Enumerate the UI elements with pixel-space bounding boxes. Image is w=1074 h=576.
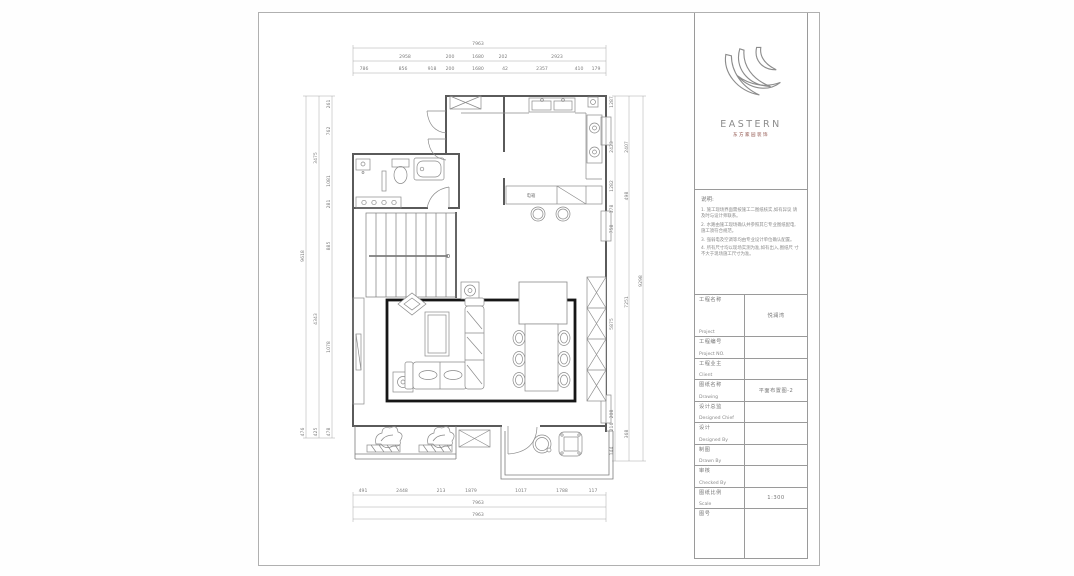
field-value: 1:300 [745, 488, 807, 509]
title-block-table: 工程名称Project悦澜湾工程编号Project NO.工程业主Client图… [695, 294, 807, 558]
svg-text:179: 179 [592, 66, 601, 72]
field-label: 图纸名称Drawing [695, 380, 745, 401]
svg-text:5875: 5875 [609, 318, 615, 330]
note-line: 3. 强弱电及空调等均由专业设计单位确认配置。 [701, 238, 801, 244]
svg-text:786: 786 [360, 66, 369, 72]
note-line: 4. 所有尺寸均以现场实测为准,如有出入,图纸尺 寸不大于现场施工尺寸为准。 [701, 246, 801, 259]
svg-text:1879: 1879 [465, 488, 477, 494]
field-label: 工程编号Project NO. [695, 337, 745, 358]
svg-text:410: 410 [575, 66, 584, 72]
svg-text:885: 885 [326, 242, 332, 251]
stairs [366, 213, 456, 297]
kitchen [461, 98, 602, 221]
balcony-plants [367, 427, 490, 452]
svg-text:2423: 2423 [609, 141, 615, 153]
field-label: 设计Designed By [695, 423, 745, 444]
room-labels: 电箱 [527, 192, 536, 199]
title-block-row: 设计总监Designed Chief [695, 402, 807, 424]
notes-title: 说明: [701, 195, 801, 203]
field-label: 工程业主Client [695, 359, 745, 380]
field-label: 图纸比例Scale [695, 488, 745, 509]
svg-text:2958: 2958 [399, 54, 411, 60]
svg-text:2407: 2407 [624, 141, 630, 153]
field-value [745, 337, 807, 358]
svg-text:42: 42 [502, 66, 508, 72]
drawing-page: 7963295820016802022923786856918200168042… [0, 0, 1074, 576]
field-value [745, 359, 807, 380]
field-value [745, 423, 807, 444]
title-block-row: 工程业主Client [695, 359, 807, 381]
svg-text:1788: 1788 [556, 488, 568, 494]
svg-text:476: 476 [300, 428, 306, 437]
note-line: 1. 施工现场界面需按施工二图纸核实,如有异议 请及时与设计师联系。 [701, 208, 801, 221]
logo-area: EASTERN 东方家园装饰 [695, 13, 807, 189]
svg-text:208: 208 [609, 410, 615, 419]
tv-cabinet [353, 298, 364, 404]
svg-text:202: 202 [499, 54, 508, 60]
field-label: 工程名称Project [695, 295, 745, 336]
balcony-furniture [533, 432, 582, 456]
field-label: 制图Drawn By [695, 445, 745, 466]
svg-text:1282: 1282 [609, 180, 615, 192]
svg-text:7251: 7251 [624, 296, 630, 308]
svg-text:117: 117 [589, 488, 598, 494]
svg-text:200: 200 [446, 66, 455, 72]
svg-text:216: 216 [609, 423, 615, 432]
field-value [745, 466, 807, 487]
field-label: 审核Checked By [695, 466, 745, 487]
svg-text:213: 213 [437, 488, 446, 494]
svg-text:3475: 3475 [313, 152, 319, 164]
title-block-row: 设计Designed By [695, 423, 807, 445]
svg-text:918: 918 [428, 66, 437, 72]
svg-text:425: 425 [313, 428, 319, 437]
field-value [745, 402, 807, 423]
title-block: EASTERN 东方家园装饰 说明: 1. 施工现场界面需按施工二图纸核实,如有… [694, 13, 808, 559]
field-value: 悦澜湾 [745, 295, 807, 336]
flue-box [450, 96, 598, 109]
svg-text:856: 856 [399, 66, 408, 72]
svg-text:1081: 1081 [326, 175, 332, 187]
svg-text:368: 368 [624, 430, 630, 439]
notes-area: 说明: 1. 施工现场界面需按施工二图纸核实,如有异议 请及时与设计师联系。2.… [695, 189, 807, 294]
svg-text:2357: 2357 [536, 66, 548, 72]
title-block-row: 审核Checked By [695, 466, 807, 488]
title-block-row: 工程名称Project悦澜湾 [695, 295, 807, 337]
field-value [745, 509, 807, 558]
svg-text:9618: 9618 [300, 250, 306, 262]
svg-text:1017: 1017 [515, 488, 527, 494]
title-block-row: 图纸比例Scale1:300 [695, 488, 807, 510]
svg-text:1680: 1680 [472, 66, 484, 72]
svg-text:7963: 7963 [472, 41, 484, 47]
title-block-row: 图号 [695, 509, 807, 558]
svg-text:电箱: 电箱 [527, 192, 536, 199]
svg-text:1680: 1680 [472, 54, 484, 60]
svg-text:144: 144 [609, 447, 615, 456]
title-block-row: 制图Drawn By [695, 445, 807, 467]
field-label: 设计总监Designed Chief [695, 402, 745, 423]
svg-text:178: 178 [609, 205, 615, 214]
field-label: 图号 [695, 509, 745, 558]
svg-text:7963: 7963 [472, 500, 484, 506]
svg-text:200: 200 [446, 54, 455, 60]
title-block-row: 图纸名称Drawing平面布置图-2 [695, 380, 807, 402]
svg-text:2923: 2923 [551, 54, 563, 60]
svg-text:498: 498 [624, 192, 630, 201]
bathroom-fixtures [356, 158, 444, 208]
eastern-logo-icon [716, 35, 786, 113]
note-line: 2. 水路由施工现场确认并参照其它专业图纸配电, 施工须符合规范。 [701, 223, 801, 236]
drawing-sheet: 7963295820016802022923786856918200168042… [258, 12, 820, 566]
svg-text:1287: 1287 [609, 96, 615, 108]
svg-text:261: 261 [326, 100, 332, 109]
coffee-table [425, 312, 449, 356]
title-block-row: 工程编号Project NO. [695, 337, 807, 359]
svg-text:7963: 7963 [472, 512, 484, 518]
island-cabinet [519, 282, 567, 324]
svg-text:9298: 9298 [638, 275, 644, 287]
svg-text:491: 491 [359, 488, 368, 494]
dining-set [513, 324, 570, 391]
svg-text:2448: 2448 [396, 488, 408, 494]
svg-text:758: 758 [609, 225, 615, 234]
svg-text:478: 478 [326, 428, 332, 437]
field-value [745, 445, 807, 466]
svg-text:762: 762 [326, 127, 332, 136]
logo-text: EASTERN [695, 119, 807, 130]
decor-diamond [398, 293, 426, 315]
svg-text:1078: 1078 [326, 341, 332, 353]
notes-list: 1. 施工现场界面需按施工二图纸核实,如有异议 请及时与设计师联系。2. 水路由… [701, 208, 801, 259]
svg-text:4343: 4343 [313, 313, 319, 325]
field-value: 平面布置图-2 [745, 380, 807, 401]
floor-plan: 7963295820016802022923786856918200168042… [259, 13, 696, 565]
logo-subtitle: 东方家园装饰 [695, 132, 807, 138]
storage-cabinet [587, 277, 606, 401]
svg-text:281: 281 [326, 200, 332, 209]
